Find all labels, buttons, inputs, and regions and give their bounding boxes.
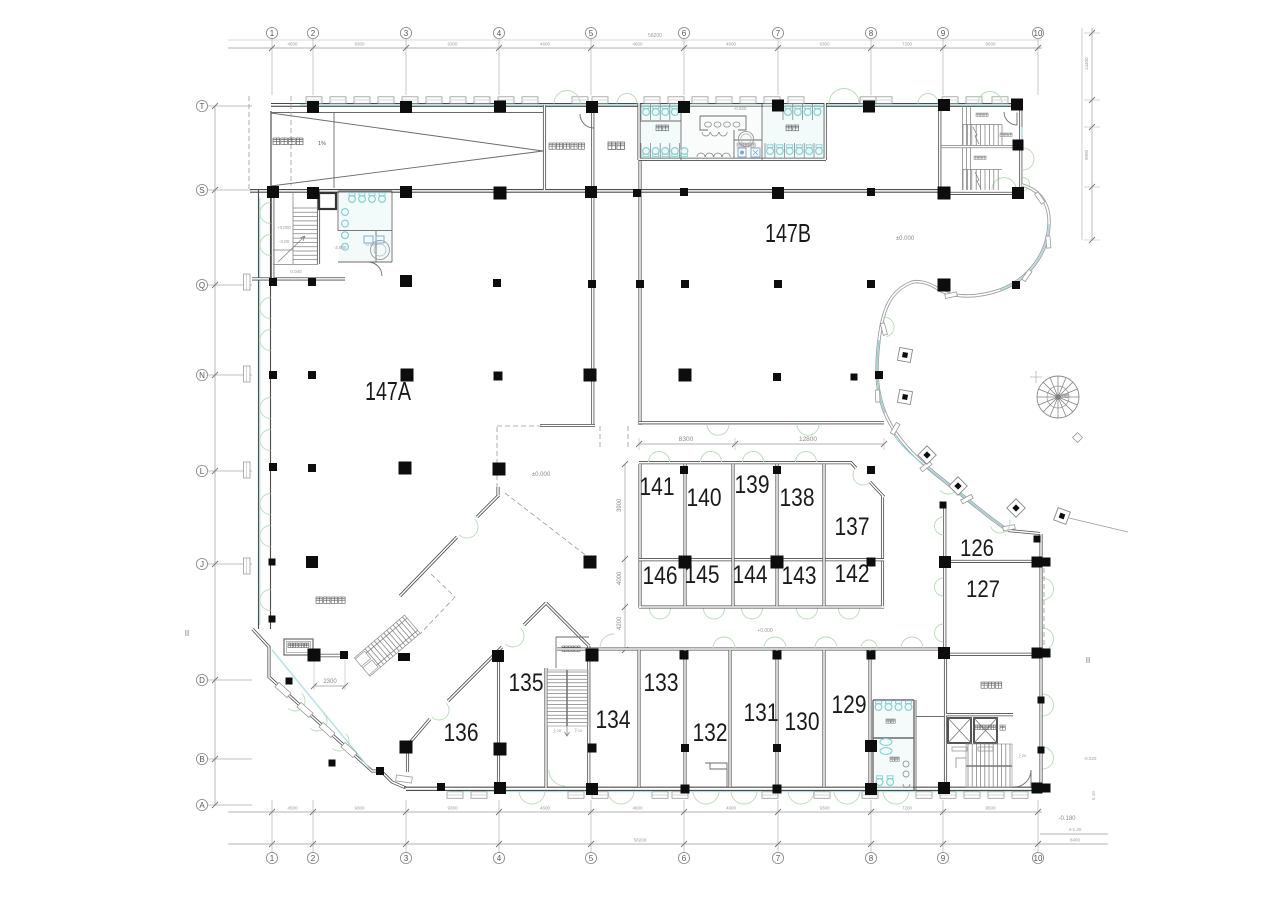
svg-text:143: 143 [782,562,817,590]
svg-text:-0.020: -0.020 [734,106,747,111]
svg-text:II: II [1086,656,1090,665]
svg-text:6: 6 [682,854,687,863]
svg-text:-0.180: -0.180 [1058,816,1076,822]
svg-text:5.10: 5.10 [1091,791,1096,800]
svg-text:5: 5 [589,854,594,863]
svg-text:4: 4 [497,854,502,863]
svg-text:8300: 8300 [679,436,694,443]
svg-text:±0.000: ±0.000 [896,236,915,242]
svg-text:-3.000: -3.000 [334,245,347,250]
svg-text:141: 141 [640,473,675,501]
svg-text:132: 132 [693,719,728,747]
svg-text:9300: 9300 [447,806,458,811]
svg-text:A: A [199,801,205,810]
svg-text:5: 5 [589,29,594,38]
svg-text:58200: 58200 [648,33,662,39]
svg-text:II: II [185,629,189,638]
svg-text:1: 1 [270,854,275,863]
svg-text:-0.030: -0.030 [365,242,378,247]
svg-text:3: 3 [404,854,409,863]
svg-text:147B: 147B [765,218,811,248]
svg-text:4600: 4600 [540,806,551,811]
svg-text:139: 139 [735,471,770,499]
svg-text:9500: 9500 [985,42,996,47]
svg-text:9300: 9300 [819,806,830,811]
svg-text:135: 135 [509,669,544,697]
svg-text:9: 9 [941,854,946,863]
svg-text:T: T [200,102,205,111]
svg-text:Q: Q [199,281,205,290]
svg-text:-3.00: -3.00 [279,239,290,244]
svg-text:+3.000: +3.000 [277,225,291,230]
svg-text:144: 144 [733,561,768,589]
svg-text:2: 2 [311,29,316,38]
svg-text:N: N [199,371,205,380]
svg-text:1%: 1% [318,141,326,147]
svg-text:126: 126 [960,535,994,562]
svg-text:B: B [199,755,204,764]
svg-text:12800: 12800 [799,436,817,443]
svg-text:9300: 9300 [354,806,365,811]
svg-text:+0.000: +0.000 [757,628,773,634]
svg-text:4500: 4500 [287,806,298,811]
svg-text:3900: 3900 [617,498,623,512]
svg-text:142: 142 [835,560,870,588]
svg-text:8: 8 [869,854,874,863]
svg-text:4600: 4600 [726,42,737,47]
svg-text:130: 130 [785,708,820,736]
svg-text:S: S [199,186,204,195]
svg-text:6: 6 [682,29,687,38]
svg-text:138: 138 [780,484,815,512]
svg-text:-0.020: -0.020 [1084,756,1097,761]
svg-text:7: 7 [776,854,781,863]
svg-text:3: 3 [404,29,409,38]
svg-text:10: 10 [1034,29,1043,38]
svg-text:下20: 下20 [574,728,583,733]
svg-text:4500: 4500 [287,42,298,47]
svg-text:±0.000: ±0.000 [532,472,551,478]
svg-text:7200: 7200 [902,42,913,47]
svg-text:4600: 4600 [726,806,737,811]
svg-text:9300: 9300 [819,42,830,47]
svg-text:7200: 7200 [902,806,913,811]
svg-text:0.040: 0.040 [290,269,302,274]
svg-text:4600: 4600 [632,42,643,47]
svg-text:9: 9 [941,29,946,38]
svg-text:137: 137 [835,513,870,541]
svg-text:136: 136 [444,719,479,747]
svg-text:134: 134 [596,706,631,734]
svg-text:4200: 4200 [617,616,623,630]
svg-text:上20: 上20 [1018,752,1027,758]
svg-text:L: L [200,467,205,476]
svg-text:14400: 14400 [1084,57,1089,70]
svg-text:9300: 9300 [447,42,458,47]
svg-text:4-1.20: 4-1.20 [1069,827,1082,832]
svg-text:4: 4 [497,29,502,38]
svg-text:上20: 上20 [553,727,562,733]
svg-text:58200: 58200 [634,838,647,843]
svg-text:140: 140 [687,484,722,512]
svg-text:129: 129 [832,691,867,719]
svg-text:4000: 4000 [617,571,623,585]
svg-text:10: 10 [1034,854,1043,863]
svg-text:2: 2 [311,854,316,863]
svg-text:9000: 9000 [1084,149,1089,160]
svg-text:9500: 9500 [985,806,996,811]
svg-text:146: 146 [643,562,678,590]
svg-text:4600: 4600 [540,42,551,47]
svg-text:2300: 2300 [323,679,337,685]
svg-text:127: 127 [966,576,1000,603]
svg-text:1: 1 [270,29,275,38]
svg-text:8: 8 [869,29,874,38]
svg-text:9300: 9300 [354,42,365,47]
svg-text:133: 133 [644,669,679,697]
svg-text:D: D [199,676,205,685]
svg-text:7: 7 [776,29,781,38]
svg-text:J: J [200,560,204,569]
svg-text:8400: 8400 [1070,838,1081,843]
svg-text:131: 131 [744,699,779,727]
svg-text:4600: 4600 [632,806,643,811]
